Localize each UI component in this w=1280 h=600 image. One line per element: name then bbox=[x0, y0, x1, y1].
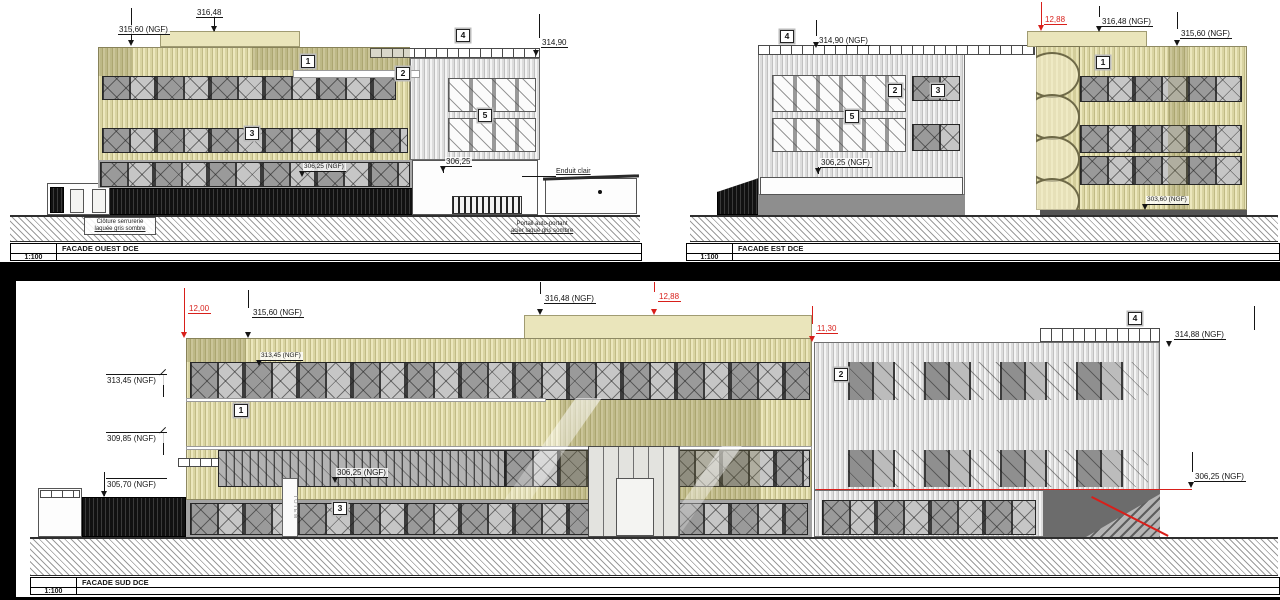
red-marker-triangle bbox=[181, 332, 187, 338]
red-level-label: 11,30 bbox=[816, 324, 838, 334]
elevation-label: 316,48 (NGF) bbox=[544, 294, 596, 304]
drawing-title: FACADE EST DCE bbox=[733, 244, 1279, 254]
est-roof-parapet bbox=[1027, 31, 1147, 47]
west-shed-door bbox=[70, 189, 84, 213]
title-block-cell bbox=[733, 254, 1279, 261]
red-level-label: 12,00 bbox=[188, 304, 211, 314]
elevation-label: 316,48 bbox=[196, 8, 223, 18]
west-gray-window-grid-upper bbox=[448, 78, 536, 112]
keynote-tag: 2 bbox=[888, 84, 902, 97]
marker-triangle bbox=[1142, 204, 1148, 210]
marker-triangle bbox=[256, 360, 262, 366]
est-ground-hatch bbox=[690, 215, 1278, 242]
elevation-label: 306,25 (NGF) bbox=[1194, 472, 1246, 482]
west-shed-dark-panel bbox=[50, 187, 64, 213]
marker-triangle bbox=[440, 166, 446, 172]
title-block-cell bbox=[57, 254, 641, 261]
drawing-title: FACADE OUEST DCE bbox=[57, 244, 641, 254]
marker-triangle bbox=[533, 50, 539, 56]
leader-line bbox=[1177, 12, 1178, 29]
west-annex-dot bbox=[598, 190, 602, 194]
dimension-label: 305,70 (NGF) bbox=[106, 478, 167, 489]
west-gate bbox=[452, 196, 522, 214]
sud-dark-fence bbox=[82, 497, 186, 537]
material-note-portail: Portail auto-portant acier laqué gris so… bbox=[498, 221, 586, 235]
red-leader-line bbox=[184, 288, 185, 332]
marker-triangle bbox=[1188, 482, 1194, 488]
keynote-tag: 3 bbox=[333, 502, 347, 515]
keynote-tag: 3 bbox=[931, 84, 945, 97]
marker-triangle bbox=[1166, 341, 1172, 347]
marker-triangle bbox=[815, 168, 821, 174]
sud-roof-parapet bbox=[524, 315, 812, 340]
marker-triangle bbox=[1096, 26, 1102, 32]
marker-triangle bbox=[1174, 40, 1180, 46]
leader-line bbox=[1192, 452, 1193, 472]
marker-triangle bbox=[101, 491, 107, 497]
title-block-cell bbox=[687, 244, 733, 254]
leader-line bbox=[539, 14, 540, 38]
est-window-grid-lower bbox=[772, 118, 906, 152]
red-level-line bbox=[816, 489, 1192, 490]
sud-entrance-door bbox=[616, 478, 654, 536]
marker-triangle bbox=[537, 309, 543, 315]
keynote-tag: 1 bbox=[301, 55, 315, 68]
west-ground-floor-windows bbox=[100, 162, 410, 187]
est-window-row-2 bbox=[1080, 125, 1242, 153]
west-dark-fence bbox=[98, 188, 447, 215]
west-facade-shadow bbox=[252, 47, 410, 70]
marker-triangle bbox=[211, 26, 217, 32]
elevation-label: 314,90 (NGF) bbox=[818, 36, 870, 46]
est-roof-railing bbox=[758, 45, 1035, 55]
west-facade-shadow bbox=[98, 47, 132, 76]
sud-balcony-railing bbox=[178, 458, 220, 467]
title-block-cell bbox=[31, 578, 77, 588]
west-roof-parapet bbox=[160, 31, 300, 47]
sud-gray-window-row-upper bbox=[848, 362, 1148, 400]
leader-line bbox=[1099, 6, 1100, 17]
sud-gray-window-row-lower bbox=[848, 450, 1148, 487]
sud-roof-railing bbox=[1040, 328, 1160, 342]
dimension-label: 309,85 (NGF) bbox=[106, 432, 167, 443]
marker-triangle bbox=[245, 332, 251, 338]
est-window-grid-upper bbox=[772, 75, 906, 112]
sud-shed-roof-strip bbox=[40, 490, 80, 498]
est-small-windows-lower bbox=[912, 124, 960, 151]
title-block-cell bbox=[77, 588, 1279, 595]
red-leader-line bbox=[1041, 2, 1042, 26]
elevation-label: 314,90 bbox=[541, 38, 568, 48]
sud-floor-slab bbox=[186, 398, 546, 402]
leader-line bbox=[522, 176, 556, 177]
elevation-label: 306,25 (NGF) bbox=[336, 468, 388, 478]
keynote-tag: 1 bbox=[234, 404, 248, 417]
material-note-cloture: Clôture serrurerie laquée gris sombre bbox=[84, 217, 156, 235]
spiral-stair-coil bbox=[1036, 94, 1080, 140]
red-marker-triangle bbox=[809, 336, 815, 342]
est-basement-band bbox=[758, 195, 965, 215]
sud-window-row-upper bbox=[190, 362, 810, 400]
leader-line bbox=[1254, 306, 1255, 330]
elevation-label: 316,48 (NGF) bbox=[1101, 17, 1153, 27]
west-gray-window-grid-lower bbox=[448, 118, 536, 152]
elevation-label: 313,45 (NGF) bbox=[260, 352, 303, 361]
elevation-label: 306,25 bbox=[445, 157, 472, 167]
sud-totem-pylon: TOTEM bbox=[282, 478, 298, 537]
keynote-tag: 1 bbox=[1096, 56, 1110, 69]
sud-ground-hatch bbox=[30, 537, 1278, 576]
west-window-row-upper bbox=[102, 76, 396, 100]
keynote-tag: 3 bbox=[245, 127, 259, 140]
west-title-block: FACADE OUEST DCE 1:100 bbox=[10, 243, 642, 261]
est-base-strip bbox=[760, 177, 963, 195]
leader-line bbox=[248, 290, 249, 308]
elevation-label: 315,60 (NGF) bbox=[118, 25, 170, 35]
drawing-scale: 1:100 bbox=[31, 588, 77, 595]
est-plinth bbox=[1040, 210, 1247, 215]
marker-triangle bbox=[299, 171, 305, 177]
est-title-block: FACADE EST DCE 1:100 bbox=[686, 243, 1280, 261]
marker-triangle bbox=[813, 42, 819, 48]
sud-facade-shadow bbox=[186, 338, 246, 362]
keynote-tag: 4 bbox=[780, 30, 794, 43]
elevation-label: 303,60 (NGF) bbox=[1146, 196, 1189, 205]
sud-gray-ground-windows bbox=[822, 500, 1036, 535]
est-window-row-1 bbox=[1080, 76, 1242, 102]
title-block-cell bbox=[11, 244, 57, 254]
drawing-title: FACADE SUD DCE bbox=[77, 578, 1279, 588]
elevation-label: 314,88 (NGF) bbox=[1174, 330, 1226, 340]
keynote-tag: 5 bbox=[845, 110, 859, 123]
elevation-label: 315,60 (NGF) bbox=[252, 308, 304, 318]
elevation-label: 315,60 (NGF) bbox=[1180, 29, 1232, 39]
marker-triangle bbox=[332, 477, 338, 483]
keynote-tag: 4 bbox=[456, 29, 470, 42]
keynote-tag: 2 bbox=[834, 368, 848, 381]
keynote-tag: 5 bbox=[478, 109, 492, 122]
marker-triangle bbox=[128, 40, 134, 46]
dimension-label: 313,45 (NGF) bbox=[106, 374, 167, 385]
sud-title-block: FACADE SUD DCE 1:100 bbox=[30, 577, 1280, 595]
red-leader-line bbox=[812, 306, 813, 324]
west-shed-door bbox=[92, 189, 106, 213]
spiral-stair-coil bbox=[1036, 136, 1080, 182]
drawing-scale: 1:100 bbox=[11, 254, 57, 261]
est-facade-shadow bbox=[1168, 46, 1188, 210]
red-marker-triangle bbox=[1038, 25, 1044, 31]
leader-line bbox=[816, 20, 817, 36]
keynote-tag: 4 bbox=[1128, 312, 1142, 325]
west-annex-structure bbox=[545, 178, 637, 214]
spiral-stair-coil bbox=[1036, 178, 1080, 210]
red-leader-line bbox=[654, 282, 655, 292]
red-level-label: 12,88 bbox=[1044, 15, 1067, 25]
elevation-label: 306,25 (NGF) bbox=[303, 163, 346, 172]
leader-line bbox=[540, 282, 541, 294]
est-spiral-stair bbox=[1036, 46, 1080, 210]
keynote-tag: 2 bbox=[396, 67, 410, 80]
material-note-enduit: Enduit clair bbox=[556, 168, 591, 175]
est-window-row-3 bbox=[1080, 156, 1242, 185]
drawing-scale: 1:100 bbox=[687, 254, 733, 261]
elevation-label: 306,25 (NGF) bbox=[820, 158, 872, 168]
red-marker-triangle bbox=[651, 309, 657, 315]
red-level-label: 12,88 bbox=[658, 292, 681, 302]
spiral-stair-coil bbox=[1036, 52, 1080, 98]
